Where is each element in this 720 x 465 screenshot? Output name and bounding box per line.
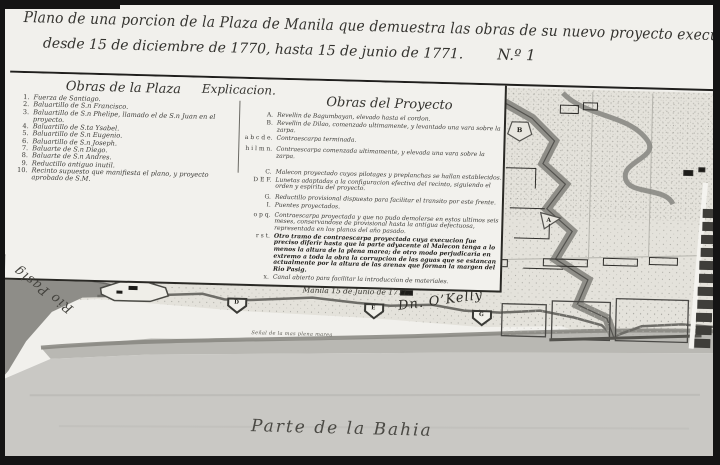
proyecto-item: h i l m n.Contraescarpa comenzada ultima…: [242, 146, 504, 166]
item-text: Otro tramo de contraescarpa proyectada c…: [273, 233, 502, 279]
sheet-number: N.º 1: [497, 45, 536, 64]
plaza-list: 1.Fuerza de Santiago. 2.Baluartillo de S…: [15, 94, 237, 187]
redan-letter-d: D: [234, 300, 239, 306]
photographed-map: Plano de una porcion de la Plaza de Mani…: [0, 0, 720, 465]
item-key: o p q.: [240, 211, 271, 232]
tilted-map-content: Plano de una porcion de la Plaza de Mani…: [4, 4, 714, 457]
item-key: B.: [243, 120, 273, 134]
proyecto-item: r s t.Otro tramo de contraescarpa proyec…: [239, 233, 502, 279]
proyecto-column: Obras del Proyecto A.Revellin de Bagumba…: [238, 93, 506, 317]
map-paper: Plano de una porcion de la Plaza de Mani…: [4, 4, 714, 457]
item-key: r s t.: [239, 233, 270, 273]
ravelin-letter-a: A: [546, 217, 551, 224]
item-key: G.: [241, 194, 271, 201]
item-key: a b c d e.: [242, 135, 272, 142]
item-text: Contraescarpa comenzada ultimamente, y e…: [276, 147, 504, 166]
ravelin-letter-b: B: [517, 126, 523, 134]
redan-letter-g: G: [479, 312, 484, 318]
item-key: h i l m n.: [242, 146, 272, 160]
redan-letter-e: E: [371, 305, 375, 311]
item-key: A.: [243, 112, 273, 119]
item-number: 10.: [15, 167, 27, 182]
item-number: 3.: [17, 108, 29, 123]
item-key: D E F.: [241, 176, 271, 190]
photo-frame-corner: [0, 0, 120, 9]
item-key: I.: [241, 202, 271, 209]
item-key: x.: [239, 274, 269, 281]
item-key: C.: [242, 168, 272, 175]
